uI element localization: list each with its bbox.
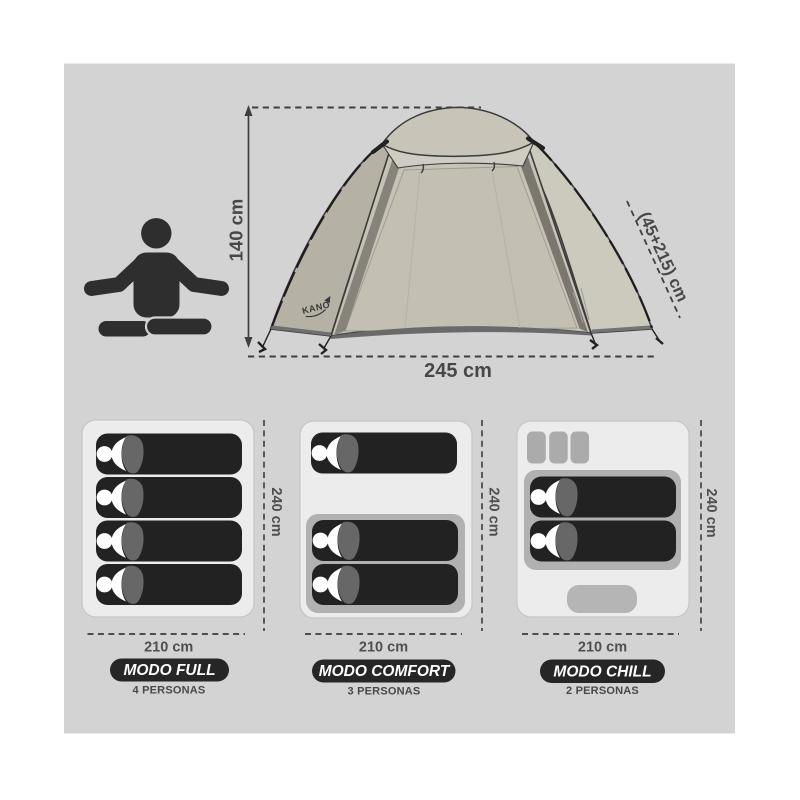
svg-text:240 cm: 240 cm [486, 487, 502, 536]
svg-text:4 PERSONAS: 4 PERSONAS [133, 685, 206, 697]
svg-text:240 cm: 240 cm [703, 488, 719, 537]
svg-text:240 cm: 240 cm [268, 487, 284, 536]
svg-text:210 cm: 210 cm [578, 640, 627, 656]
svg-text:140 cm: 140 cm [226, 199, 247, 262]
svg-text:MODO CHILL: MODO CHILL [553, 664, 651, 681]
svg-text:MODO FULL: MODO FULL [123, 662, 215, 679]
svg-text:2 PERSONAS: 2 PERSONAS [566, 685, 639, 697]
svg-text:245 cm: 245 cm [424, 360, 492, 382]
svg-text:210 cm: 210 cm [144, 640, 193, 656]
svg-text:3 PERSONAS: 3 PERSONAS [348, 686, 421, 698]
svg-text:MODO COMFORT: MODO COMFORT [319, 663, 451, 680]
svg-text:210 cm: 210 cm [359, 640, 408, 656]
